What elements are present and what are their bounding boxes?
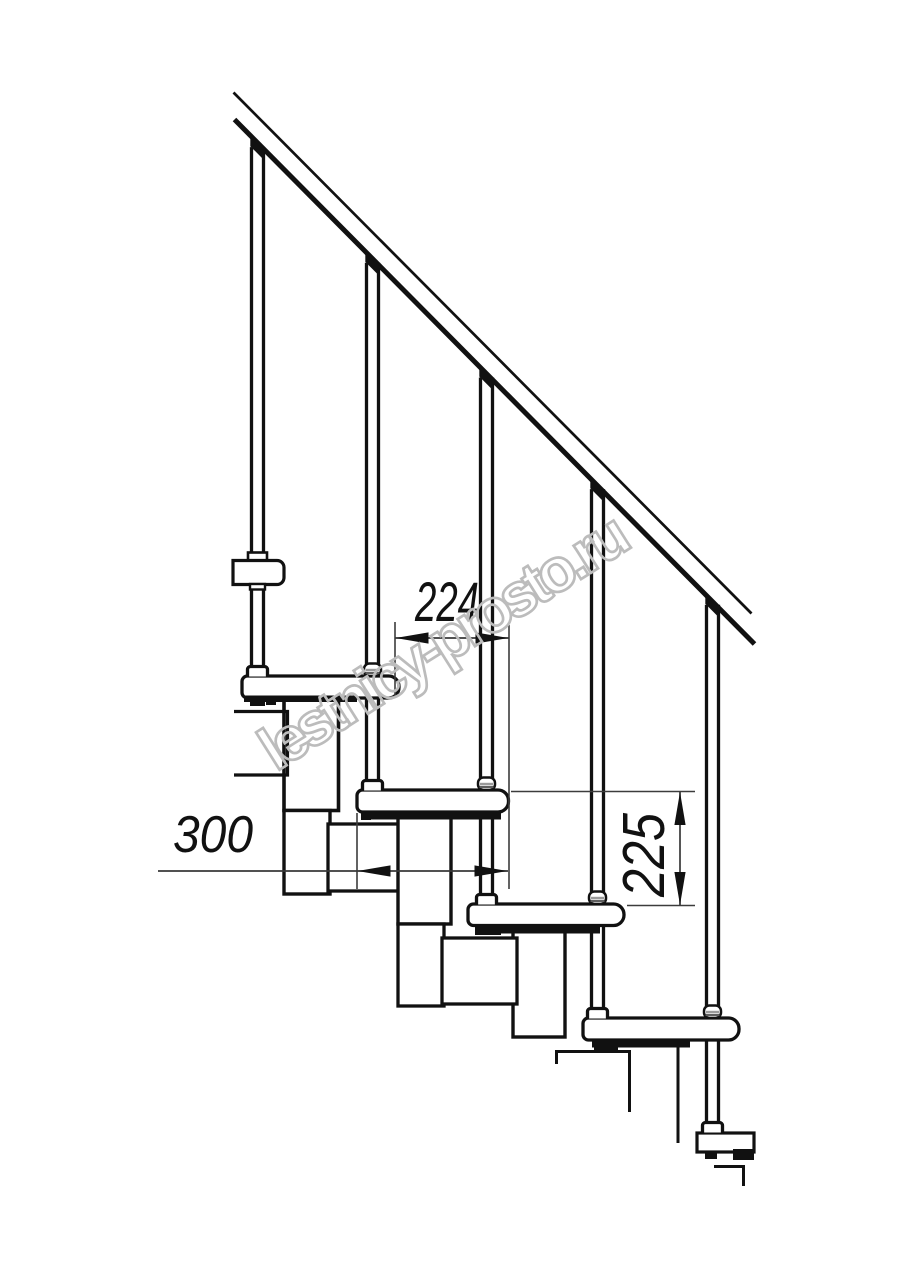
svg-text:225: 225 bbox=[611, 813, 677, 898]
svg-text:300: 300 bbox=[173, 806, 253, 864]
